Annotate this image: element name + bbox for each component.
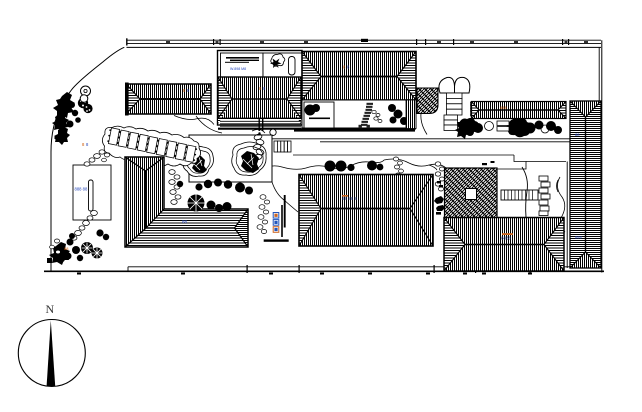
svg-text:88 88 8: 88 88 8 (342, 196, 358, 201)
svg-text:W.898 M8: W.898 M8 (230, 67, 246, 71)
svg-text:88: 88 (182, 219, 188, 224)
svg-text:888: 888 (575, 235, 582, 240)
svg-text:888 88: 888 88 (75, 187, 88, 192)
svg-text:888: 888 (500, 105, 507, 110)
svg-text:N: N (46, 302, 55, 316)
svg-text:8888: 8888 (501, 236, 512, 241)
svg-text:88: 88 (64, 246, 69, 251)
svg-text:88: 88 (575, 132, 580, 137)
